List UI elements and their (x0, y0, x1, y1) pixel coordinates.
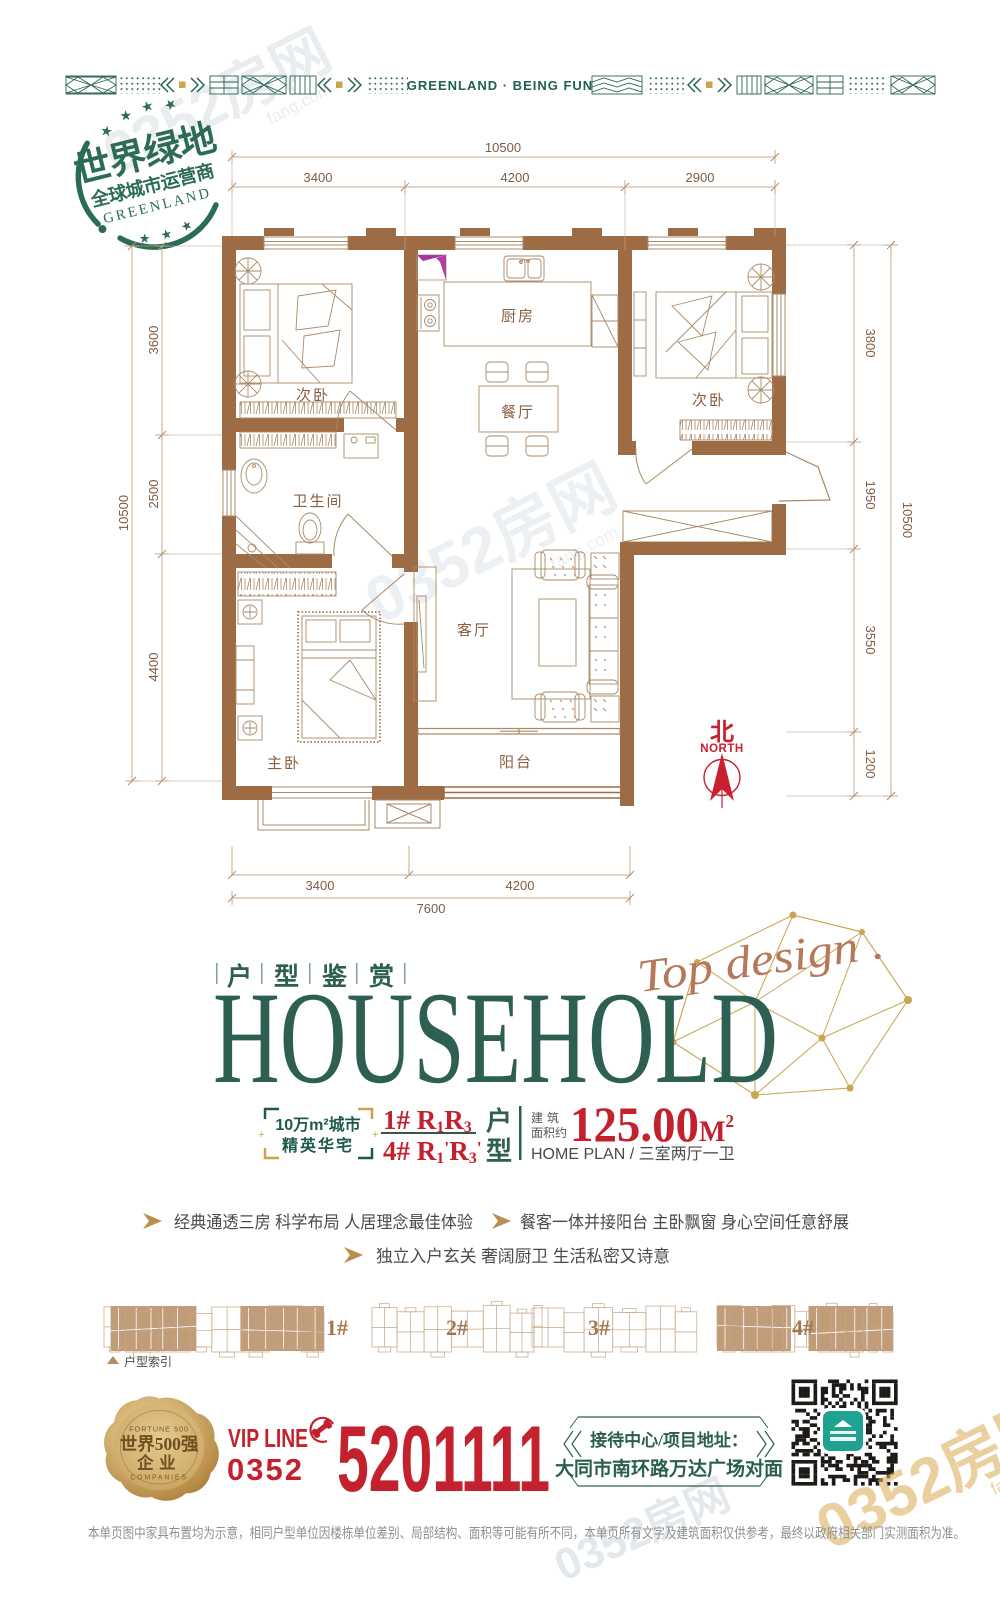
svg-text:4400: 4400 (146, 653, 161, 682)
svg-text:北: 北 (710, 719, 734, 746)
svg-text:世界500强: 世界500强 (120, 1434, 199, 1454)
svg-text:1#: 1# (326, 1315, 348, 1340)
svg-text:4200: 4200 (501, 170, 530, 185)
svg-text:4#: 4# (792, 1315, 814, 1340)
svg-text:户型索引: 户型索引 (124, 1354, 172, 1369)
svg-text:5201111: 5201111 (337, 1406, 550, 1511)
svg-text:★: ★ (139, 231, 151, 246)
svg-text:★: ★ (159, 226, 174, 243)
svg-text:4# R1'R3': 4# R1'R3' (383, 1136, 482, 1167)
svg-text:10500: 10500 (116, 495, 131, 531)
svg-text:1950: 1950 (863, 481, 878, 510)
svg-text:2500: 2500 (146, 480, 161, 509)
svg-text:+: + (372, 1129, 378, 1141)
svg-text:卫生间: 卫生间 (292, 493, 343, 510)
svg-text:3550: 3550 (863, 626, 878, 655)
svg-text:精英华宅: 精英华宅 (282, 1136, 354, 1155)
svg-text:10万m²城市: 10万m²城市 (275, 1115, 360, 1134)
svg-text:餐客一体并接阳台 主卧飘窗 身心空间任意舒展: 餐客一体并接阳台 主卧飘窗 身心空间任意舒展 (520, 1213, 849, 1232)
svg-text:企业: 企业 (136, 1452, 181, 1472)
svg-text:主卧: 主卧 (267, 755, 301, 772)
svg-text:4200: 4200 (506, 878, 535, 893)
svg-text:GREENLAND · BEING FUN: GREENLAND · BEING FUN (407, 78, 593, 93)
svg-text:VIP LINE: VIP LINE (228, 1423, 308, 1453)
svg-text:餐厅: 餐厅 (501, 404, 535, 421)
svg-text:大同市南环路万达广场对面: 大同市南环路万达广场对面 (555, 1457, 783, 1480)
svg-text:1# R1R3: 1# R1R3 (383, 1105, 472, 1136)
svg-text:2900: 2900 (686, 170, 715, 185)
svg-text:3800: 3800 (863, 329, 878, 358)
svg-text:建筑: 建筑 (531, 1110, 563, 1125)
svg-text:★: ★ (119, 107, 133, 124)
svg-text:接待中心/项目地址：: 接待中心/项目地址： (590, 1430, 748, 1450)
svg-text:阳台: 阳台 (499, 754, 533, 771)
svg-text:厨房: 厨房 (501, 308, 535, 325)
svg-text:HOME PLAN / 三室两厅一卫: HOME PLAN / 三室两厅一卫 (531, 1145, 735, 1163)
svg-text:3#: 3# (588, 1315, 610, 1340)
svg-text:10500: 10500 (485, 140, 521, 155)
svg-text:型: 型 (486, 1136, 512, 1166)
svg-text:3400: 3400 (306, 878, 335, 893)
svg-text:客厅: 客厅 (457, 622, 491, 639)
svg-text:7600: 7600 (417, 901, 446, 916)
svg-text:面积约: 面积约 (531, 1125, 567, 1140)
svg-text:3400: 3400 (304, 170, 333, 185)
svg-text:2#: 2# (446, 1315, 468, 1340)
svg-text:独立入户玄关 奢阔厨卫 生活私密又诗意: 独立入户玄关 奢阔厨卫 生活私密又诗意 (376, 1247, 670, 1266)
svg-text:3600: 3600 (146, 326, 161, 355)
svg-text:次卧: 次卧 (692, 392, 726, 409)
svg-text:1200: 1200 (863, 750, 878, 779)
svg-text:0352: 0352 (227, 1452, 304, 1487)
svg-text:次卧: 次卧 (296, 387, 330, 404)
svg-text:本单页图中家具布置均为示意，相同户型单位因楼栋单位差别、局部: 本单页图中家具布置均为示意，相同户型单位因楼栋单位差别、局部结构、面积等可能有所… (88, 1525, 965, 1541)
svg-text:HOUSEHOLD: HOUSEHOLD (213, 964, 778, 1111)
svg-text:户: 户 (486, 1106, 512, 1136)
svg-text:经典通透三房 科学布局 人居理念最佳体验: 经典通透三房 科学布局 人居理念最佳体验 (174, 1212, 473, 1232)
svg-text:10500: 10500 (900, 502, 915, 538)
svg-text:+: + (258, 1129, 264, 1141)
svg-text:FORTUNE 500: FORTUNE 500 (129, 1425, 189, 1434)
svg-text:COMPANIES: COMPANIES (130, 1474, 187, 1481)
